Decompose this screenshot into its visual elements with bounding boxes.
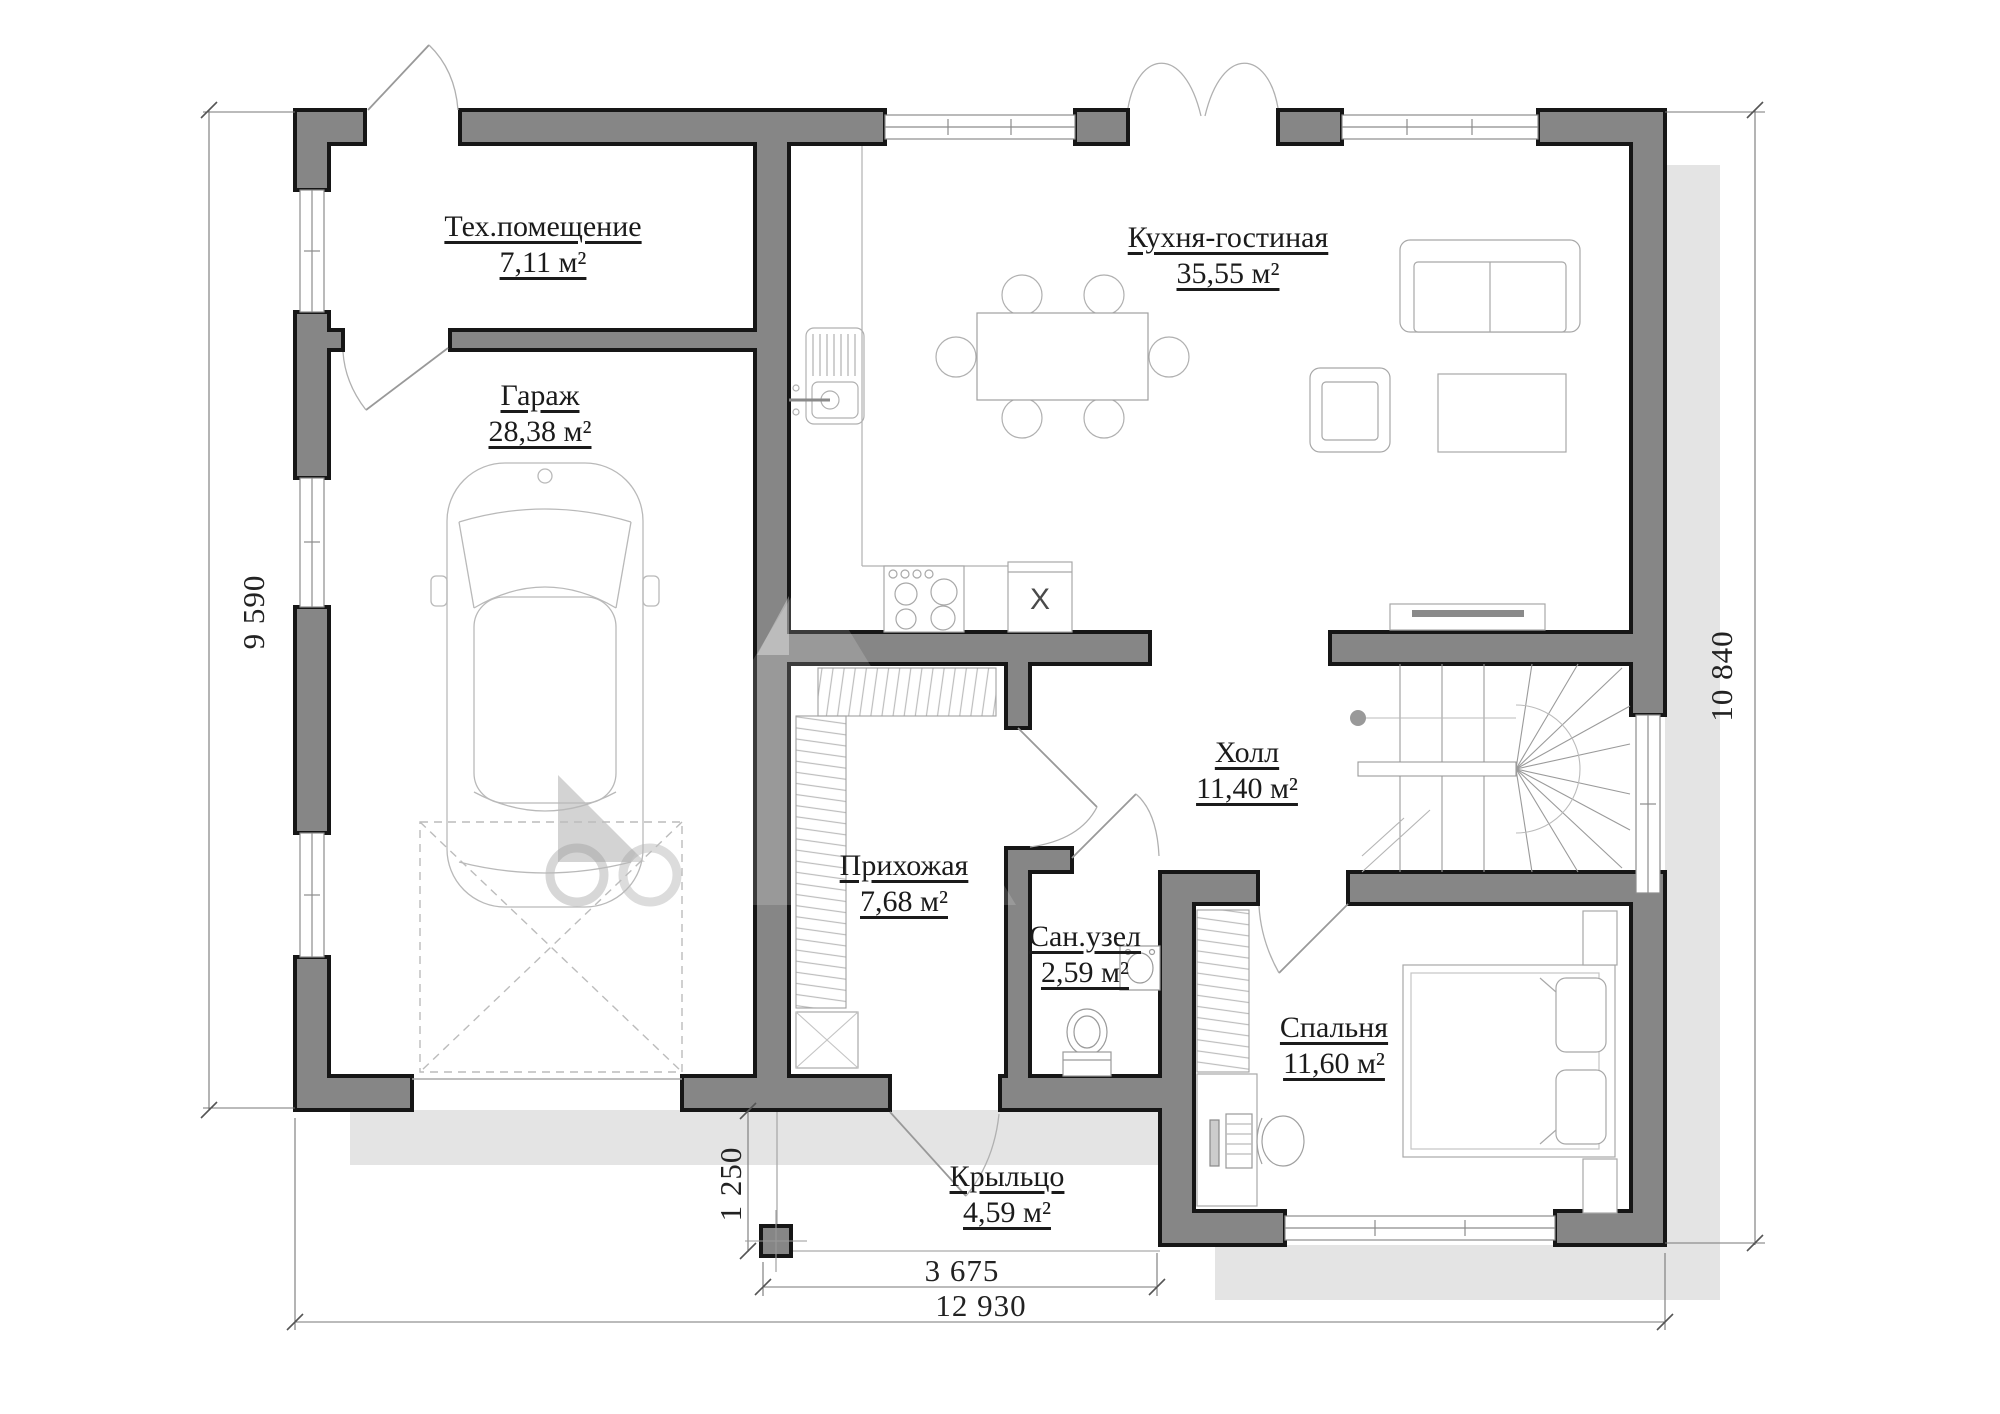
room-area: 2,59 м² [1029,955,1141,991]
tv-console [1390,604,1545,630]
dimension-total-width: 12 930 [935,1288,1026,1324]
stove [884,566,964,632]
dimension-left-height: 9 590 [236,575,272,650]
dimension-porch-depth: 1 250 [713,1147,749,1222]
bed [1403,965,1615,1157]
window-garage-left-1 [300,478,324,607]
room-label-bedroom: Спальня 11,60 м² [1280,1010,1388,1082]
room-area: 35,55 м² [1128,256,1329,292]
door-french-kitchen [1128,63,1278,116]
room-label-wc: Сан.узел 2,59 м² [1029,919,1141,991]
room-name: Кухня-гостиная [1128,220,1329,256]
room-label-kitchen: Кухня-гостиная 35,55 м² [1128,220,1329,292]
bedroom-wardrobe [1197,910,1249,1072]
window-garage-left-2 [300,833,324,957]
coffee-table [1438,374,1566,452]
room-name: Спальня [1280,1010,1388,1046]
room-label-porch: Крыльцо 4,59 м² [950,1159,1065,1231]
window-tech-left [300,190,324,312]
appliance-x-marker: X [1030,583,1050,617]
room-label-hall: Холл 11,40 м² [1196,735,1298,807]
dimension-right-height: 10 840 [1704,630,1740,721]
door-tech-exterior [368,45,458,110]
floor-plan-page: Тех.помещение 7,11 м² Гараж 28,38 м² Кух… [0,0,2000,1414]
sofa [1400,240,1580,332]
room-label-hallway: Прихожая 7,68 м² [840,848,969,920]
desk [1197,1074,1257,1206]
room-area: 4,59 м² [950,1195,1065,1231]
room-area: 7,68 м² [840,884,969,920]
room-name: Прихожая [840,848,969,884]
room-name: Гараж [489,378,592,414]
room-name: Холл [1196,735,1298,771]
room-name: Крыльцо [950,1159,1065,1195]
window-bedroom-bottom [1285,1216,1555,1240]
window-kitchen-top-1 [885,115,1075,139]
window-kitchen-top-2 [1342,115,1538,139]
room-name: Тех.помещение [444,209,641,245]
room-area: 7,11 м² [444,245,641,281]
room-area: 11,40 м² [1196,771,1298,807]
room-area: 28,38 м² [489,414,592,450]
room-label-tech: Тех.помещение 7,11 м² [444,209,641,281]
room-area: 11,60 м² [1280,1046,1388,1082]
room-name: Сан.узел [1029,919,1141,955]
room-label-garage: Гараж 28,38 м² [489,378,592,450]
armchair [1310,368,1390,452]
dimension-porch-width: 3 675 [925,1253,1000,1289]
toilet [1063,1009,1111,1076]
window-stairs-right [1636,715,1660,893]
